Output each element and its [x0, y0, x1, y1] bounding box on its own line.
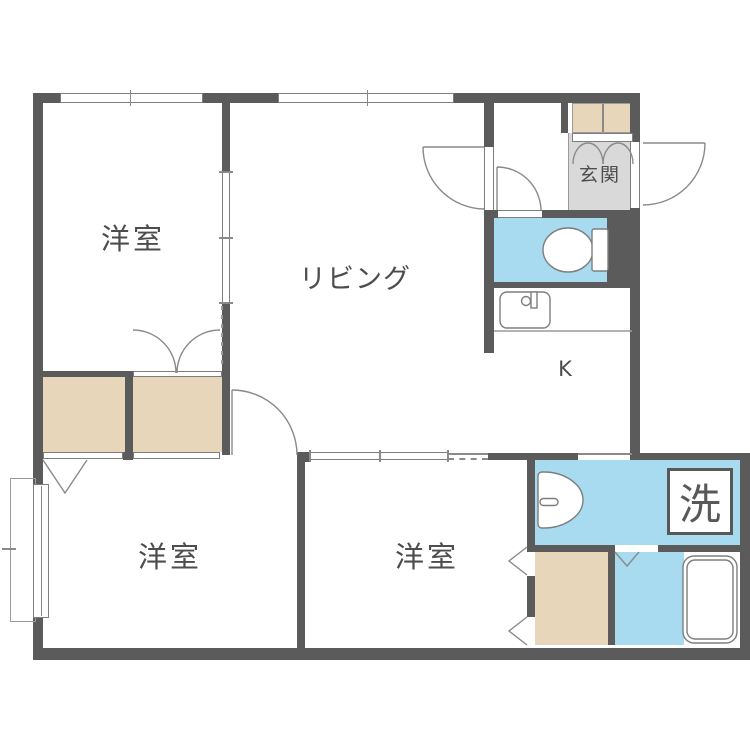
wall: [527, 545, 615, 552]
wall: [527, 576, 535, 617]
closet-a: [43, 377, 125, 452]
wall: [740, 453, 750, 660]
entrance-swing-door: [643, 143, 705, 205]
folding-door-mark: [43, 460, 87, 493]
wall: [607, 218, 632, 282]
room-label-bedroom-bottom-middle: 洋室: [357, 534, 497, 576]
balcony-tick: [2, 548, 16, 550]
swing-door: [232, 390, 297, 455]
wall: [484, 282, 632, 288]
bathroom-floor: [615, 552, 684, 645]
wall: [454, 93, 640, 103]
window-mullion: [130, 90, 132, 106]
wall: [563, 210, 640, 218]
wall: [33, 93, 43, 484]
sliding-door-tick: [219, 302, 233, 304]
wall: [33, 648, 750, 660]
wall: [561, 95, 568, 133]
washing-machine-label: 洗: [679, 471, 721, 532]
room-label-bedroom-top: 洋室: [63, 216, 203, 258]
entrance-door-track: [572, 133, 633, 142]
closet-door-track: [133, 452, 220, 459]
sliding-door-tick: [219, 171, 233, 173]
window-sash-line: [41, 486, 43, 616]
wall: [33, 371, 133, 377]
room-label-kitchen: K: [545, 357, 585, 381]
sliding-door-tick: [379, 450, 381, 462]
swing-door: [497, 167, 541, 210]
wall: [608, 552, 615, 645]
sliding-door-tick: [309, 450, 311, 462]
closet-c: [535, 552, 608, 645]
folding-door-mark: [509, 617, 527, 645]
toilet-room-floor: [494, 218, 607, 282]
closet-door-track: [133, 371, 222, 377]
wall: [203, 93, 278, 103]
wall: [484, 95, 494, 147]
wall: [222, 303, 230, 455]
door-opening: [498, 210, 542, 218]
washing-machine-box: 洗: [667, 468, 733, 535]
room-label-bedroom-bottom-left: 洋室: [100, 534, 240, 576]
sliding-door-tick: [219, 237, 233, 239]
kitchen-sink-icon: [500, 292, 550, 328]
floorplan: 洋室 リビング 洋室 洋室 玄関 K 洗: [0, 0, 750, 750]
sliding-door-tick: [447, 450, 449, 462]
folding-door-mark: [509, 547, 527, 575]
wall: [297, 460, 305, 648]
closet-double-door: [133, 330, 220, 373]
closet-b: [133, 377, 222, 452]
shoe-cabinet-divider: [602, 104, 604, 132]
opening-dashed-line: [221, 306, 223, 368]
room-label-living: リビング: [255, 257, 455, 296]
wall: [484, 210, 498, 218]
opening-dashed-line: [448, 458, 488, 460]
swing-door: [423, 147, 484, 209]
opening-line: [578, 453, 632, 455]
bathtub-icon: [683, 556, 737, 643]
opening-line: [448, 453, 488, 455]
window: [60, 93, 203, 103]
door-opening: [484, 147, 494, 210]
room-label-entrance: 玄関: [558, 160, 642, 187]
wall: [125, 377, 133, 452]
window-mullion: [367, 90, 369, 106]
wall: [123, 452, 133, 460]
wall: [527, 455, 535, 546]
wall: [632, 453, 740, 460]
wall: [542, 210, 563, 218]
wall: [658, 545, 750, 552]
wall: [222, 95, 230, 172]
closet-door-track: [43, 452, 123, 459]
